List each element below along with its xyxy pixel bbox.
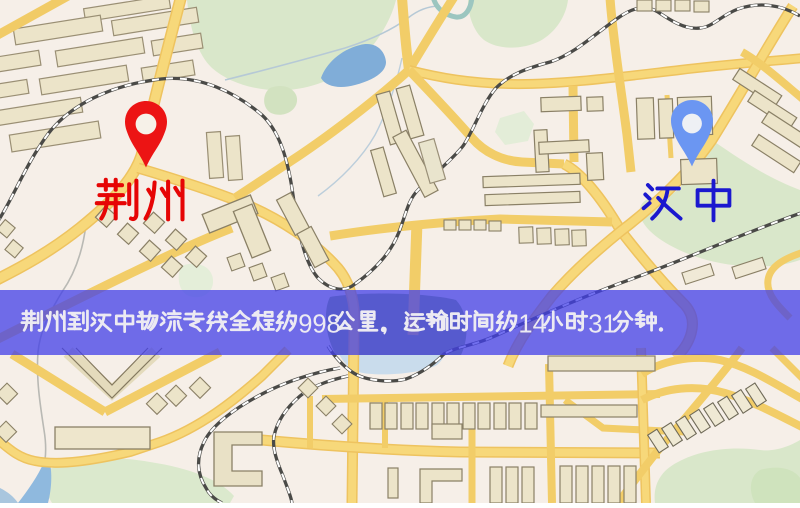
svg-text:31: 31 [588, 311, 616, 339]
svg-text:14: 14 [518, 311, 546, 339]
svg-text:998: 998 [298, 311, 341, 339]
